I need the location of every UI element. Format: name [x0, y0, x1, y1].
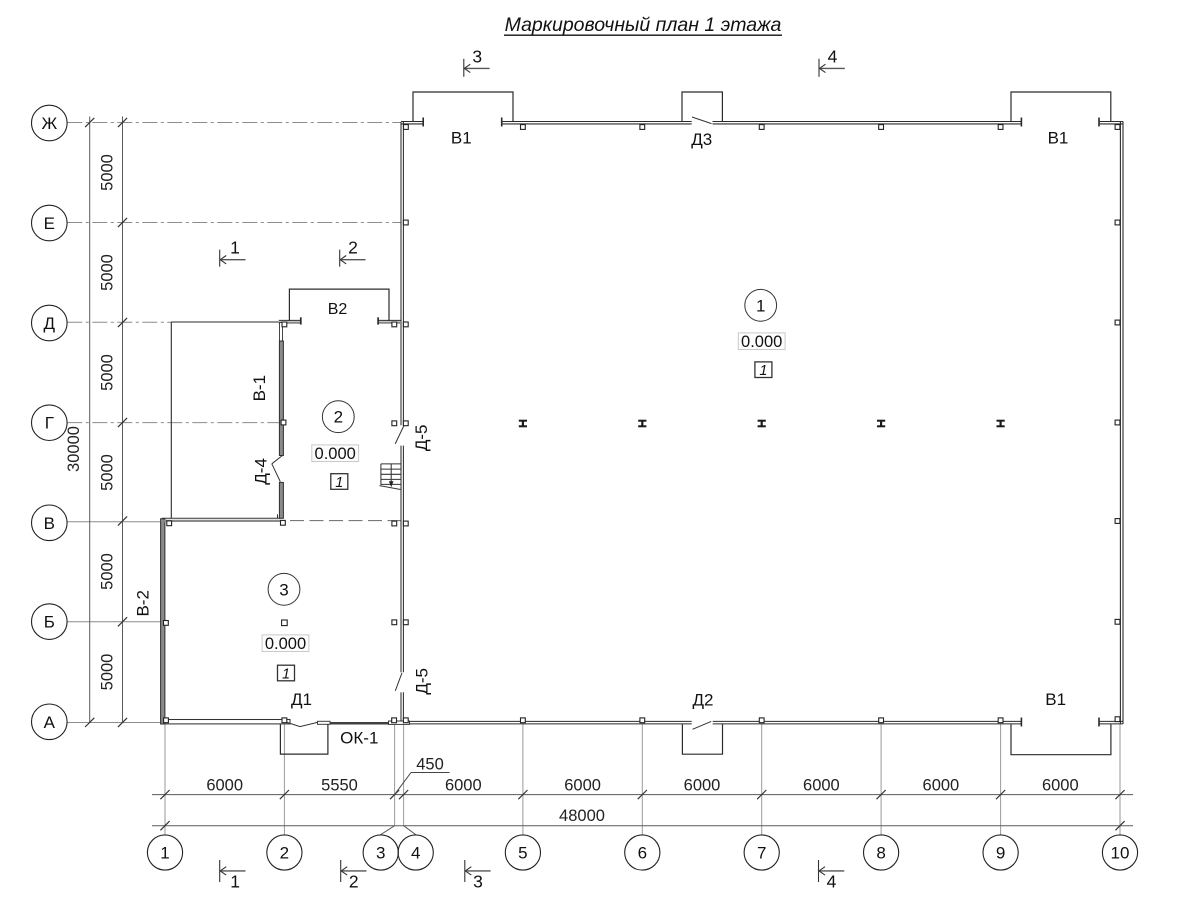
svg-text:Д2: Д2 — [693, 691, 714, 710]
svg-text:Е: Е — [44, 214, 55, 233]
svg-text:5000: 5000 — [99, 654, 117, 691]
svg-text:6000: 6000 — [803, 776, 840, 794]
svg-text:10: 10 — [1111, 844, 1130, 863]
svg-text:6000: 6000 — [564, 776, 601, 794]
svg-text:А: А — [44, 713, 56, 732]
svg-text:В1: В1 — [1048, 129, 1069, 148]
svg-text:5000: 5000 — [99, 354, 117, 391]
svg-text:2: 2 — [348, 237, 358, 257]
svg-text:9: 9 — [996, 844, 1005, 863]
svg-text:В2: В2 — [328, 301, 348, 318]
svg-text:Д1: Д1 — [291, 690, 312, 709]
svg-text:4: 4 — [827, 872, 837, 892]
svg-text:Д-5: Д-5 — [412, 424, 431, 451]
svg-text:6000: 6000 — [684, 776, 721, 794]
svg-text:1: 1 — [160, 844, 169, 863]
svg-text:3: 3 — [472, 46, 482, 66]
svg-text:6000: 6000 — [923, 776, 960, 794]
svg-text:1: 1 — [282, 667, 290, 683]
svg-text:4: 4 — [828, 46, 838, 66]
svg-text:1: 1 — [756, 296, 765, 315]
svg-text:5000: 5000 — [99, 553, 117, 590]
svg-text:450: 450 — [416, 756, 444, 774]
svg-text:5: 5 — [518, 844, 527, 863]
svg-text:8: 8 — [876, 844, 885, 863]
svg-text:0.000: 0.000 — [265, 635, 306, 653]
svg-text:6000: 6000 — [445, 776, 482, 794]
svg-text:4: 4 — [411, 844, 420, 863]
svg-text:В1: В1 — [451, 129, 472, 148]
svg-text:30000: 30000 — [65, 426, 83, 472]
svg-text:Маркировочный план 1 этажа: Маркировочный план 1 этажа — [505, 14, 782, 36]
svg-text:3: 3 — [376, 844, 385, 863]
svg-text:В: В — [44, 514, 55, 533]
svg-text:7: 7 — [757, 844, 766, 863]
svg-text:6: 6 — [638, 844, 647, 863]
svg-text:Д3: Д3 — [691, 130, 712, 149]
svg-text:Г: Г — [45, 414, 54, 433]
svg-text:5000: 5000 — [99, 454, 117, 491]
svg-text:5000: 5000 — [99, 254, 117, 291]
svg-text:2: 2 — [334, 408, 343, 427]
svg-text:В-1: В-1 — [250, 375, 269, 401]
svg-text:1: 1 — [759, 363, 767, 379]
svg-text:0.000: 0.000 — [315, 445, 356, 463]
svg-text:3: 3 — [473, 872, 483, 892]
svg-text:0.000: 0.000 — [741, 333, 782, 351]
svg-text:В1: В1 — [1045, 690, 1066, 709]
svg-text:2: 2 — [280, 844, 289, 863]
svg-text:Ж: Ж — [41, 114, 57, 133]
svg-text:5550: 5550 — [321, 776, 358, 794]
svg-text:Д-5: Д-5 — [412, 668, 431, 695]
svg-text:Д-4: Д-4 — [251, 458, 270, 485]
svg-text:6000: 6000 — [206, 776, 243, 794]
svg-text:ОК-1: ОК-1 — [340, 729, 378, 748]
svg-text:6000: 6000 — [1042, 776, 1079, 794]
svg-text:1: 1 — [335, 475, 343, 491]
svg-text:2: 2 — [349, 872, 359, 892]
svg-text:5000: 5000 — [99, 154, 117, 191]
svg-text:Б: Б — [44, 613, 55, 632]
svg-text:Д: Д — [44, 314, 56, 333]
svg-text:1: 1 — [230, 237, 240, 257]
svg-text:В-2: В-2 — [133, 590, 152, 616]
svg-text:48000: 48000 — [559, 807, 605, 825]
svg-text:3: 3 — [279, 580, 288, 599]
svg-text:1: 1 — [230, 872, 240, 892]
